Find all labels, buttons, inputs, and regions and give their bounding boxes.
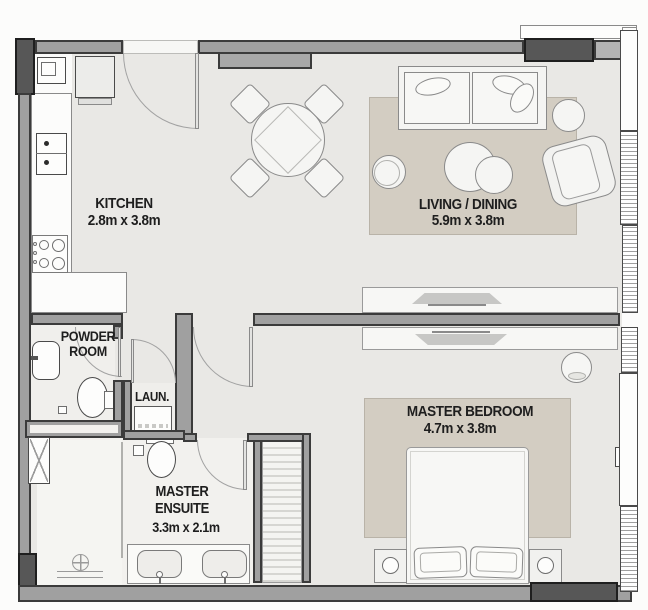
cooktop-knob bbox=[33, 242, 37, 246]
shower-threshold bbox=[57, 571, 103, 578]
wardrobe bbox=[262, 440, 302, 583]
powder-bin bbox=[58, 406, 67, 414]
cooktop-burner bbox=[52, 239, 65, 252]
wall-band-recess bbox=[30, 425, 118, 433]
lamp-left bbox=[382, 557, 399, 574]
wall-top-kitchen bbox=[35, 40, 123, 54]
fridge-base bbox=[78, 98, 112, 105]
washer-detail bbox=[138, 424, 168, 428]
tv-living bbox=[412, 293, 502, 304]
wall-closet-left bbox=[253, 440, 262, 583]
cooktop-burner bbox=[39, 240, 49, 250]
master-bedroom-label: MASTER BEDROOM bbox=[389, 404, 551, 419]
wall-closet-right bbox=[302, 433, 311, 583]
column-top-left bbox=[15, 38, 35, 95]
window-handle bbox=[615, 447, 620, 467]
window-bedroom-lower bbox=[620, 506, 638, 592]
oven-divider bbox=[36, 153, 67, 154]
bed-pillow-inner bbox=[420, 551, 462, 572]
window-bedroom bbox=[619, 373, 638, 506]
lamp-right bbox=[537, 557, 554, 574]
ensuite-toilet-button bbox=[133, 445, 144, 456]
washer bbox=[134, 406, 172, 432]
ensuite-door-leaf bbox=[243, 440, 247, 490]
kitchen-dims: 2.8m x 3.8m bbox=[61, 213, 187, 228]
cooktop-burner bbox=[39, 258, 49, 268]
kitchen-counter-bottom bbox=[31, 272, 127, 313]
entry-threshold bbox=[123, 40, 198, 54]
oven-burner-dot bbox=[44, 141, 49, 146]
kitchen-sink-basin bbox=[41, 62, 56, 76]
vanity-faucet-stem bbox=[224, 578, 226, 584]
living-dining-dims: 5.9m x 3.8m bbox=[396, 213, 540, 228]
window-living-lower bbox=[622, 225, 638, 313]
oven bbox=[36, 133, 67, 175]
cooktop-knob bbox=[33, 260, 37, 264]
powder-room-label-line2: ROOM bbox=[52, 344, 124, 358]
vanity-faucet-left bbox=[156, 571, 163, 578]
tv-living-base bbox=[428, 304, 486, 306]
cooktop-burner bbox=[52, 257, 65, 270]
window-top-right bbox=[620, 30, 638, 131]
oven-burner-dot bbox=[44, 160, 49, 165]
vanity-faucet-stem bbox=[159, 578, 161, 584]
wall-powder-top bbox=[31, 313, 123, 325]
master-bedroom-dims: 4.7m x 3.8m bbox=[379, 421, 541, 436]
wall-ensuite-top-a bbox=[183, 433, 197, 442]
coffee-table-small bbox=[475, 156, 513, 194]
wall-hall-post bbox=[175, 313, 193, 435]
wall-laundry-bottom bbox=[123, 430, 185, 440]
ottoman-inner bbox=[374, 160, 400, 186]
shower-screen bbox=[121, 442, 123, 558]
shower-drain-icon bbox=[72, 554, 89, 571]
entry-bulkhead bbox=[218, 52, 312, 69]
tv-bedroom-base bbox=[432, 331, 490, 333]
laundry-label: LAUN. bbox=[125, 390, 179, 403]
side-table bbox=[552, 99, 585, 132]
powder-faucet bbox=[31, 356, 38, 360]
plant-base bbox=[568, 372, 586, 380]
wall-powder-right-b bbox=[113, 380, 123, 422]
kitchen-label: KITCHEN bbox=[61, 196, 187, 211]
tv-bedroom bbox=[415, 334, 507, 345]
ensuite-toilet-bowl bbox=[147, 441, 176, 478]
entry-door-leaf bbox=[195, 53, 199, 129]
service-shaft-x-icon bbox=[30, 439, 48, 482]
sliding-door-living bbox=[620, 131, 638, 225]
ensuite-label-line1: MASTER bbox=[128, 485, 236, 500]
ensuite-label-line2: ENSUITE bbox=[128, 502, 236, 517]
floor-plan: KITCHEN 2.8m x 3.8m LIVING / DINING 5.9m… bbox=[0, 0, 648, 610]
wall-left bbox=[18, 93, 31, 560]
window-bedroom-upper bbox=[621, 327, 638, 373]
living-dining-label: LIVING / DINING bbox=[396, 197, 540, 212]
cooktop-knob bbox=[33, 251, 37, 255]
column-bottom-right bbox=[530, 582, 618, 602]
laundry-door-leaf bbox=[131, 339, 134, 383]
column-top-right bbox=[524, 38, 594, 62]
powder-room-label-line1: POWDER bbox=[52, 329, 124, 343]
vanity-faucet-right bbox=[221, 571, 228, 578]
bedroom-door-leaf bbox=[249, 327, 253, 387]
wall-divider-living-bedroom bbox=[253, 313, 620, 326]
ensuite-dims: 3.3m x 2.1m bbox=[132, 520, 240, 534]
fridge bbox=[75, 56, 115, 98]
bed-pillow-inner bbox=[476, 551, 518, 572]
